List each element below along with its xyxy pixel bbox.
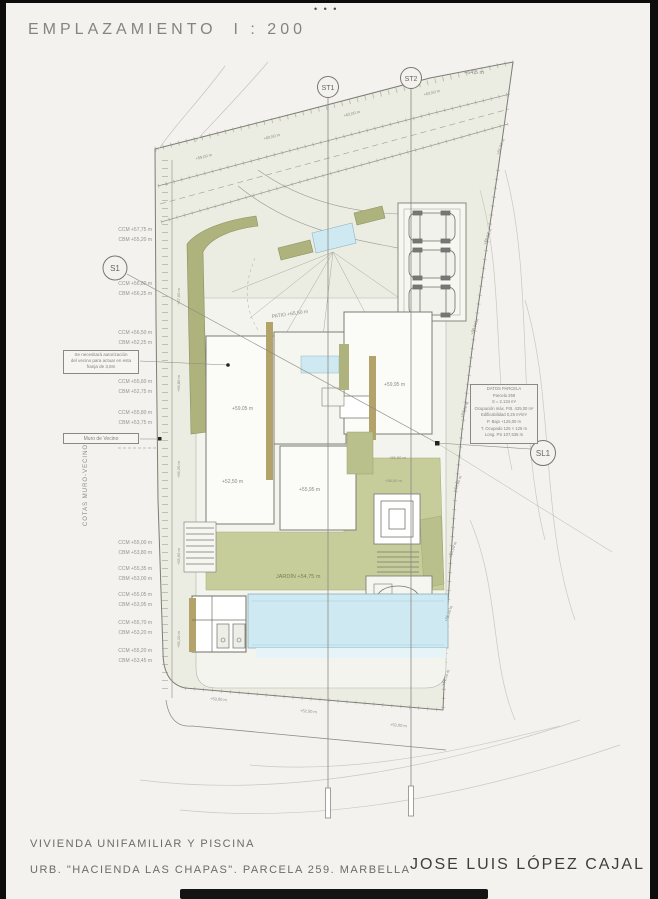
parcel-data-box: DATOS PARCELA Parcela 259 S = 2.134 m² O… xyxy=(470,384,538,444)
title-text: EMPLAZAMIENTO xyxy=(28,21,217,38)
svg-text:+55,60 m: +55,60 m xyxy=(176,548,181,565)
elevation-pair: CCM +56,80 mCBM +56,25 m xyxy=(64,279,152,299)
svg-text:+56,20 m: +56,20 m xyxy=(176,461,181,478)
section-marker-sl1: SL1 xyxy=(531,441,556,466)
svg-text:S1: S1 xyxy=(110,264,120,273)
svg-text:JARDÍN +54,75 m: JARDÍN +54,75 m xyxy=(276,573,321,580)
svg-text:+58,00 m: +58,00 m xyxy=(385,478,402,483)
authorization-note-box: Se necesitará autorización del vecino pa… xyxy=(63,350,139,374)
elevation-pair: CCM +55,00 mCBM +53,80 m xyxy=(64,538,152,558)
tan-wall xyxy=(369,356,376,440)
tan-wall xyxy=(266,322,273,480)
muro-note-box: Muro de Vecino xyxy=(63,433,139,444)
svg-text:SL1: SL1 xyxy=(536,449,551,458)
svg-text:+52,00 m: +52,00 m xyxy=(390,722,408,728)
section-marker-s1: S1 xyxy=(103,256,127,280)
elevation-pair: CCM +55,60 mCBM +52,75 m xyxy=(64,377,152,397)
elevation-pair: CCM +55,05 mCBM +53,95 m xyxy=(64,590,152,610)
project-location: URB. "HACIENDA LAS CHAPAS". PARCELA 259.… xyxy=(30,864,410,876)
svg-text:ST2: ST2 xyxy=(405,76,418,83)
water-feature xyxy=(301,356,339,373)
green-patch xyxy=(347,432,373,474)
elevation-pair: CCM +57,75 mCBM +55,20 m xyxy=(64,225,152,245)
svg-text:+56,50 m: +56,50 m xyxy=(389,455,406,460)
scale-text: I : 200 xyxy=(234,21,306,38)
svg-text:+59,05 m: +59,05 m xyxy=(232,406,253,412)
svg-text:+59,95 m: +59,95 m xyxy=(384,382,405,388)
car-icon xyxy=(409,211,455,243)
svg-text:ST1: ST1 xyxy=(322,85,335,92)
plan-svg: ST1 ST2 S1 SL1 PATIO +65,50 m +59,05 m +… xyxy=(0,0,658,899)
architect-name: JOSE LUIS LÓPEZ CAJAL xyxy=(393,856,645,874)
side-title: COTAS MURO-VECINO xyxy=(83,430,93,540)
svg-text:+53,00 m: +53,00 m xyxy=(210,696,228,702)
house-volume xyxy=(206,336,274,524)
section-marker-st2: ST2 xyxy=(401,68,422,89)
pool xyxy=(248,594,448,658)
car-icon xyxy=(409,248,455,280)
corner-dots: • • • xyxy=(314,4,338,14)
project-title: VIVIENDA UNIFAMILIAR Y PISCINA xyxy=(30,838,255,850)
svg-text:+57,50 m: +57,50 m xyxy=(176,288,181,305)
section-marker-st1: ST1 xyxy=(318,77,339,98)
svg-text:+55,10 m: +55,10 m xyxy=(176,631,181,648)
elevation-pair: CCM +55,20 mCBM +53,45 m xyxy=(64,646,152,666)
svg-text:+52,50 m: +52,50 m xyxy=(300,708,318,714)
elevation-pair: CCM +55,80 mCBM +53,75 m xyxy=(64,408,152,428)
censor-bar xyxy=(180,889,488,899)
pool-house xyxy=(189,596,246,652)
page-title: EMPLAZAMIENTO I : 200 xyxy=(28,21,306,39)
svg-text:+64,5 m: +64,5 m xyxy=(464,70,484,76)
stairs xyxy=(184,522,216,572)
svg-text:+56,80 m: +56,80 m xyxy=(176,375,181,392)
elevation-pair: CCM +55,70 mCBM +53,20 m xyxy=(64,618,152,638)
elevation-pair: CCM +55,35 mCBM +53,00 m xyxy=(64,564,152,584)
site-plan-sheet: { "window": { "dots": "• • •" }, "header… xyxy=(0,0,658,899)
elevation-pair: CCM +56,50 mCBM +52,25 m xyxy=(64,328,152,348)
garage xyxy=(398,203,466,321)
svg-text:+55,95 m: +55,95 m xyxy=(299,487,320,493)
svg-text:+52,50 m: +52,50 m xyxy=(222,479,243,485)
green-patch xyxy=(339,344,349,390)
